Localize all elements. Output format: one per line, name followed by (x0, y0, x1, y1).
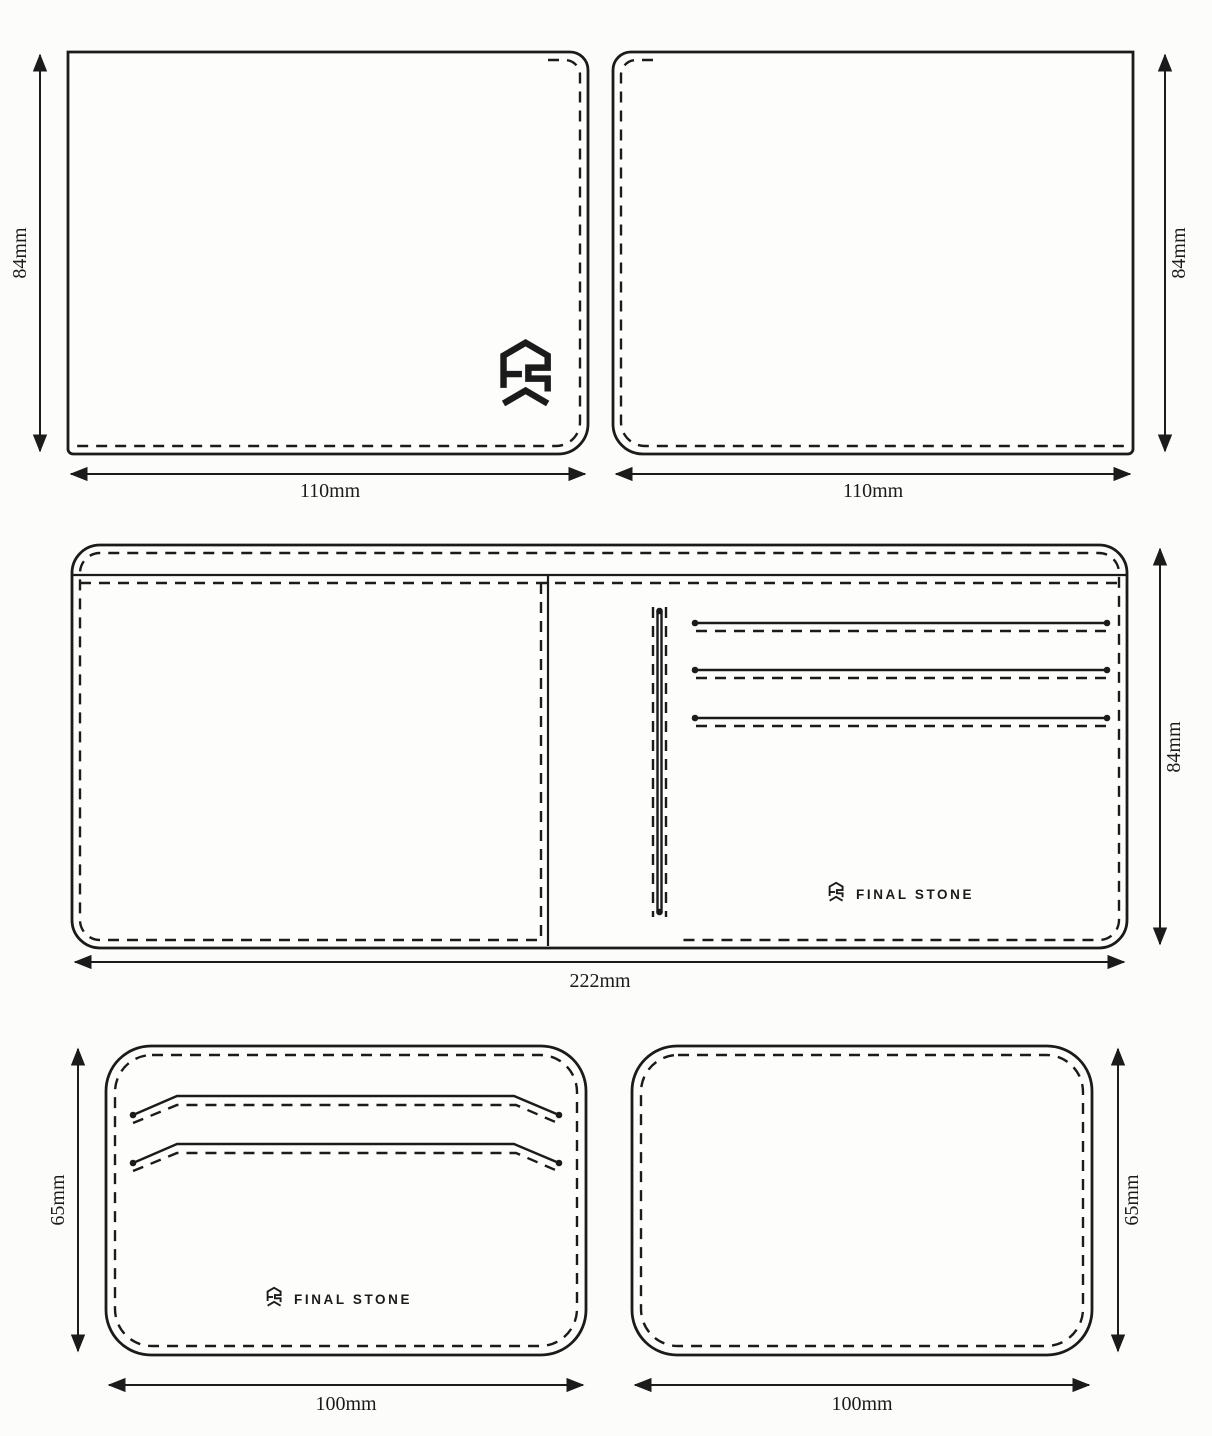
dimension-label: 84mm (1163, 721, 1185, 773)
dimension-label: 100mm (315, 1393, 377, 1415)
brand-name: FINAL STONE (856, 887, 974, 902)
dimension-label: 222mm (569, 970, 631, 992)
slot-end-dot (556, 1112, 563, 1119)
slot-end-dot (656, 909, 663, 916)
dimension-height-interior: 84mm (1160, 549, 1185, 944)
panel-outline (68, 52, 588, 454)
slot-end-dot (692, 667, 699, 674)
slot-end-dot (1104, 620, 1111, 627)
slot-end-dot (692, 715, 699, 722)
panel-outer-shell-right (613, 52, 1133, 454)
panel-outline (613, 52, 1133, 454)
dimension-label: 84mm (9, 227, 31, 279)
panel-outline (106, 1046, 586, 1355)
panel-interior: FINAL STONE (72, 545, 1127, 948)
dimension-label: 110mm (300, 480, 361, 502)
slot-end-dot (1104, 715, 1111, 722)
wallet-pattern-drawing: 84mm 110mm 110mm 84mm (0, 0, 1212, 1436)
dimension-label: 65mm (47, 1174, 69, 1226)
dimension-width-pocket-back: 100mm (635, 1385, 1089, 1415)
dimension-width-pocket-front: 100mm (109, 1385, 583, 1415)
slot-end-dot (1104, 667, 1111, 674)
dimension-label: 65mm (1121, 1174, 1143, 1226)
dimension-width-outer-right: 110mm (616, 474, 1130, 502)
slot-end-dot (130, 1112, 137, 1119)
dimension-width-outer-left: 110mm (71, 474, 585, 502)
slot-end-dot (556, 1160, 563, 1167)
brand-name: FINAL STONE (294, 1292, 412, 1307)
dimension-height-outer-left: 84mm (9, 55, 40, 451)
slot-end-dot (130, 1160, 137, 1167)
dimension-height-pocket-back: 65mm (1118, 1049, 1143, 1351)
slot-end-dot (656, 608, 663, 615)
dimension-label: 100mm (831, 1393, 893, 1415)
dimension-label: 84mm (1168, 227, 1190, 279)
slot-end-dot (692, 620, 699, 627)
panel-card-pocket-slotted: FINAL STONE (106, 1046, 586, 1355)
panel-card-pocket-plain (632, 1046, 1092, 1355)
panel-outline (632, 1046, 1092, 1355)
panel-outer-shell-left (68, 52, 588, 454)
dimension-width-interior: 222mm (75, 962, 1124, 992)
dimension-height-pocket-front: 65mm (47, 1049, 78, 1351)
dimension-height-outer-right: 84mm (1165, 55, 1190, 451)
dimension-label: 110mm (843, 480, 904, 502)
